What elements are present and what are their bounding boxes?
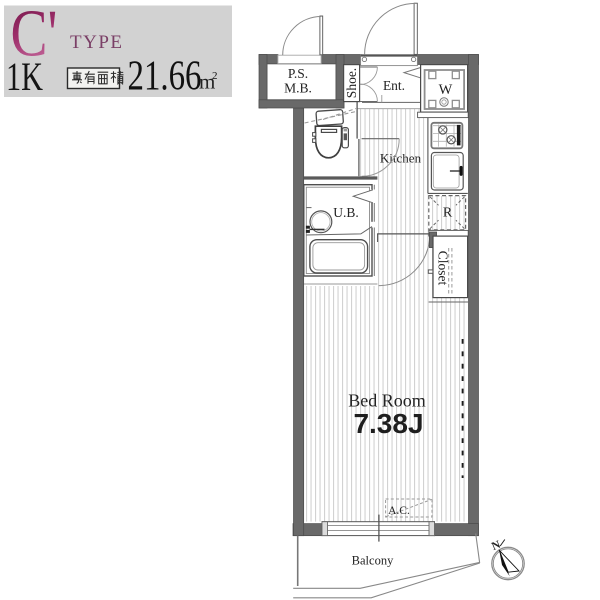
svg-text:Kitchen: Kitchen [380, 151, 422, 166]
svg-text:A.C.: A.C. [388, 505, 410, 517]
svg-text:7.38J: 7.38J [353, 408, 423, 439]
svg-text:Balcony: Balcony [352, 554, 394, 568]
svg-text:21.66: 21.66 [128, 54, 202, 100]
svg-text:Shoe.: Shoe. [344, 68, 359, 98]
svg-text:P.S.: P.S. [288, 66, 308, 81]
svg-text:U.B.: U.B. [333, 205, 359, 220]
svg-text:1K: 1K [6, 54, 43, 99]
svg-text:2: 2 [212, 70, 218, 82]
svg-text:Ent.: Ent. [383, 78, 405, 93]
svg-text:Closet: Closet [435, 251, 450, 286]
svg-text:R: R [443, 206, 453, 221]
svg-text:TYPE: TYPE [70, 32, 124, 53]
svg-text:M.B.: M.B. [284, 81, 312, 96]
svg-text:W: W [439, 82, 453, 98]
